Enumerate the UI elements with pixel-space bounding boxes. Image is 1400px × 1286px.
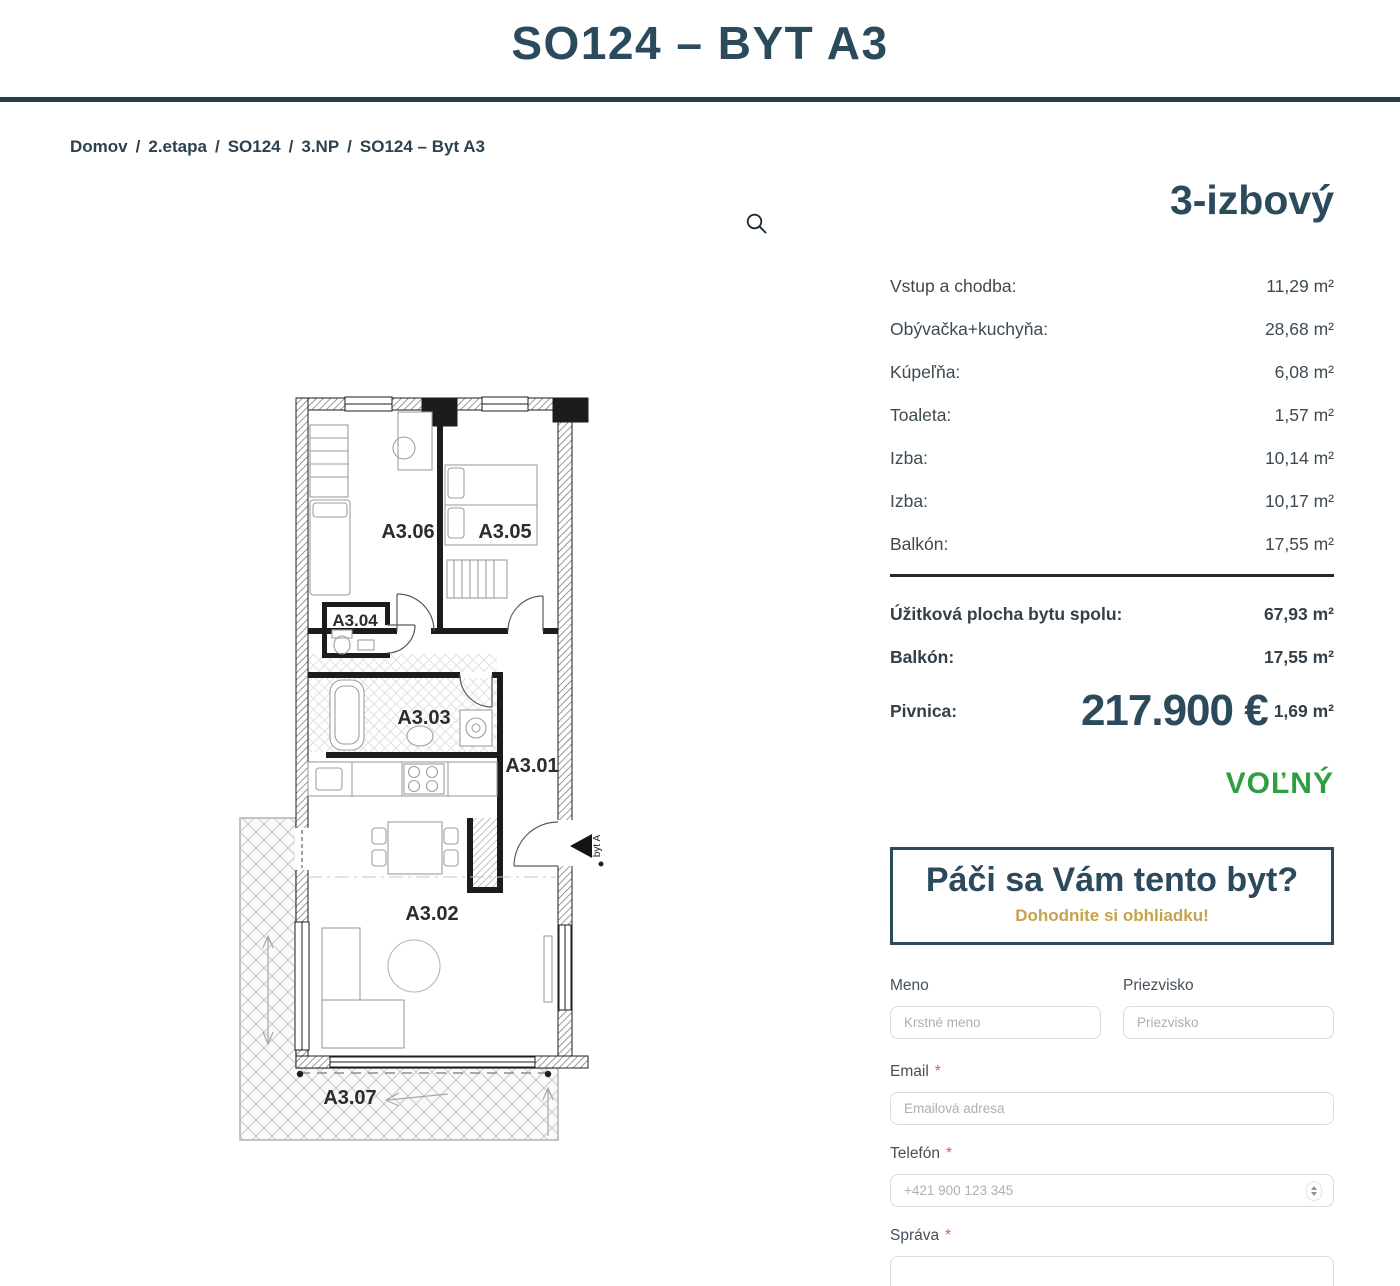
room-value: 17,55 m² bbox=[1265, 534, 1334, 555]
first-name-label: Meno bbox=[890, 977, 1101, 995]
room-label-a305: A3.05 bbox=[478, 521, 531, 543]
room-value: 1,57 m² bbox=[1275, 405, 1334, 426]
breadcrumb-link-so124[interactable]: SO124 bbox=[228, 137, 281, 157]
breadcrumb-separator: / bbox=[215, 137, 220, 157]
contact-form: Meno Priezvisko Email* Telefón* bbox=[890, 977, 1334, 1286]
room-label: Izba: bbox=[890, 491, 928, 512]
room-label: Obývačka+kuchyňa: bbox=[890, 319, 1048, 340]
phone-field[interactable] bbox=[890, 1174, 1334, 1207]
entrance-label: byt A bbox=[592, 835, 603, 858]
breadcrumb-current: SO124 – Byt A3 bbox=[360, 137, 485, 157]
total-row: Úžitková plocha bytu spolu: 67,93 m² bbox=[890, 593, 1334, 636]
room-label: Kúpeľňa: bbox=[890, 362, 960, 383]
total-label: Úžitková plocha bytu spolu: bbox=[890, 604, 1122, 625]
floorplan-image[interactable]: A3.06 A3.05 A3.04 A3.03 A3.01 A3.02 A3.0… bbox=[228, 390, 610, 1152]
room-label: Balkón: bbox=[890, 534, 948, 555]
breadcrumb: Domov / 2.etapa / SO124 / 3.NP / SO124 –… bbox=[70, 137, 485, 157]
required-mark: * bbox=[945, 1227, 951, 1244]
room-area-row: Kúpeľňa: 6,08 m² bbox=[890, 351, 1334, 394]
total-label: Balkón: bbox=[890, 647, 954, 668]
page: SO124 – BYT A3 Domov / 2.etapa / SO124 /… bbox=[0, 0, 1400, 1286]
breadcrumb-separator: / bbox=[136, 137, 141, 157]
email-field[interactable] bbox=[890, 1092, 1334, 1125]
room-label: Vstup a chodba: bbox=[890, 276, 1016, 297]
total-value: 17,55 m² bbox=[1264, 647, 1334, 668]
price-row: Pivnica: 217.900 € 1,69 m² bbox=[890, 679, 1334, 743]
required-mark: * bbox=[935, 1063, 941, 1080]
totals: Úžitková plocha bytu spolu: 67,93 m² Bal… bbox=[890, 593, 1334, 743]
apartment-summary: 3-izbový Vstup a chodba: 11,29 m² Obývač… bbox=[890, 180, 1334, 1286]
entrance-arrow-icon bbox=[570, 834, 592, 858]
room-area-list: Vstup a chodba: 11,29 m² Obývačka+kuchyň… bbox=[890, 265, 1334, 566]
first-name-field[interactable] bbox=[890, 1006, 1101, 1039]
total-value: 1,69 m² bbox=[1274, 701, 1334, 722]
breadcrumb-separator: / bbox=[289, 137, 294, 157]
room-value: 10,17 m² bbox=[1265, 491, 1334, 512]
breadcrumb-link-np[interactable]: 3.NP bbox=[301, 137, 339, 157]
last-name-label: Priezvisko bbox=[1123, 977, 1334, 995]
message-field[interactable] bbox=[890, 1256, 1334, 1286]
room-label-a307: A3.07 bbox=[323, 1087, 376, 1109]
summary-divider bbox=[890, 574, 1334, 577]
total-row: Balkón: 17,55 m² bbox=[890, 636, 1334, 679]
room-value: 28,68 m² bbox=[1265, 319, 1334, 340]
room-area-row: Izba: 10,14 m² bbox=[890, 437, 1334, 480]
total-value: 67,93 m² bbox=[1264, 604, 1334, 625]
status-badge: VOĽNÝ bbox=[890, 767, 1334, 801]
room-area-row: Izba: 10,17 m² bbox=[890, 480, 1334, 523]
room-area-row: Toaleta: 1,57 m² bbox=[890, 394, 1334, 437]
room-area-row: Obývačka+kuchyňa: 28,68 m² bbox=[890, 308, 1334, 351]
room-value: 11,29 m² bbox=[1266, 276, 1334, 297]
room-value: 10,14 m² bbox=[1265, 448, 1334, 469]
phone-label: Telefón* bbox=[890, 1145, 1334, 1163]
room-area-row: Balkón: 17,55 m² bbox=[890, 523, 1334, 566]
room-label-a303: A3.03 bbox=[397, 707, 450, 729]
apartment-type: 3-izbový bbox=[890, 180, 1334, 221]
room-label-a302: A3.02 bbox=[405, 903, 458, 925]
room-label-a304: A3.04 bbox=[332, 611, 378, 630]
number-spinner[interactable] bbox=[1306, 1181, 1322, 1201]
message-label: Správa* bbox=[890, 1227, 1334, 1245]
room-area-row: Vstup a chodba: 11,29 m² bbox=[890, 265, 1334, 308]
header-divider bbox=[0, 97, 1400, 102]
breadcrumb-link-domov[interactable]: Domov bbox=[70, 137, 128, 157]
email-label: Email* bbox=[890, 1063, 1334, 1081]
last-name-field[interactable] bbox=[1123, 1006, 1334, 1039]
breadcrumb-separator: / bbox=[347, 137, 352, 157]
total-label: Pivnica: bbox=[890, 701, 957, 722]
room-label: Izba: bbox=[890, 448, 928, 469]
page-title: SO124 – BYT A3 bbox=[0, 16, 1400, 70]
required-mark: * bbox=[946, 1145, 952, 1162]
cta-subtitle-link[interactable]: Dohodnite si obhliadku! bbox=[901, 906, 1323, 926]
room-value: 6,08 m² bbox=[1275, 362, 1334, 383]
price: 217.900 € bbox=[1081, 686, 1274, 736]
room-label-a301: A3.01 bbox=[505, 755, 558, 777]
cta-title: Páči sa Vám tento byt? bbox=[901, 860, 1323, 900]
breadcrumb-link-etapa[interactable]: 2.etapa bbox=[148, 137, 207, 157]
room-label-a306: A3.06 bbox=[381, 521, 434, 543]
cta-box: Páči sa Vám tento byt? Dohodnite si obhl… bbox=[890, 847, 1334, 945]
room-label: Toaleta: bbox=[890, 405, 951, 426]
entrance-dot bbox=[599, 862, 604, 867]
zoom-icon[interactable] bbox=[742, 210, 772, 240]
